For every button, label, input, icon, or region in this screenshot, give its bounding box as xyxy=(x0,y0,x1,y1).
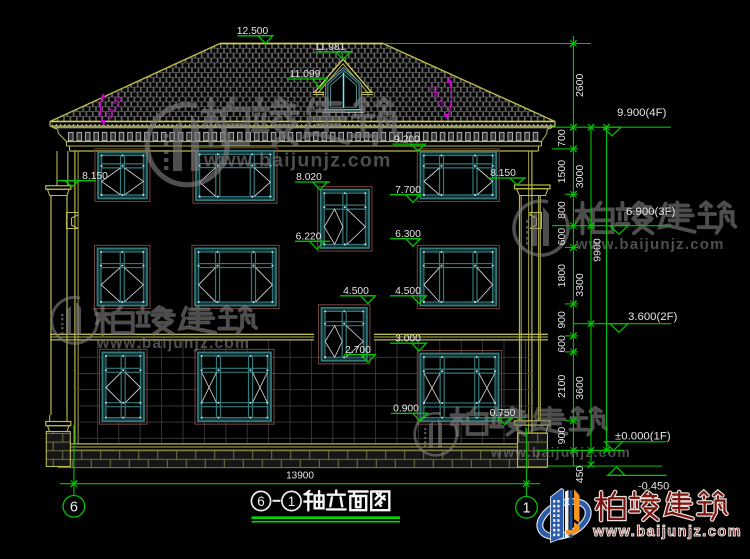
svg-text:9900: 9900 xyxy=(591,238,603,262)
svg-text:www.baijunjz.com: www.baijunjz.com xyxy=(96,335,250,352)
svg-text:2100: 2100 xyxy=(556,375,568,399)
svg-text:3000: 3000 xyxy=(574,165,586,189)
svg-text:-0.450: -0.450 xyxy=(638,481,669,493)
svg-text:700: 700 xyxy=(556,129,568,147)
svg-text:3300: 3300 xyxy=(574,273,586,297)
svg-text:www.baijunjz.com: www.baijunjz.com xyxy=(592,524,742,540)
svg-text:3600: 3600 xyxy=(574,376,586,400)
svg-text:1500: 1500 xyxy=(556,160,568,184)
svg-text:2600: 2600 xyxy=(574,74,586,98)
svg-text:600: 600 xyxy=(556,228,568,246)
svg-text:6: 6 xyxy=(257,494,265,509)
svg-text:6: 6 xyxy=(70,499,78,515)
svg-text:600: 600 xyxy=(556,335,568,353)
svg-text:13900: 13900 xyxy=(286,471,314,482)
svg-text:±0.000(1F): ±0.000(1F) xyxy=(615,430,671,442)
svg-text:1: 1 xyxy=(288,494,296,509)
svg-text:900: 900 xyxy=(556,427,568,445)
svg-text:www.baijunjz.com: www.baijunjz.com xyxy=(203,150,392,172)
svg-text:450: 450 xyxy=(574,466,586,484)
svg-text:1800: 1800 xyxy=(556,264,568,288)
svg-text:1: 1 xyxy=(522,500,530,516)
svg-text:9.900(4F): 9.900(4F) xyxy=(617,107,667,119)
svg-text:900: 900 xyxy=(556,311,568,329)
svg-text:6.900(3F): 6.900(3F) xyxy=(626,206,676,218)
svg-text:3.600(2F): 3.600(2F) xyxy=(628,311,678,323)
svg-text:800: 800 xyxy=(556,201,568,219)
